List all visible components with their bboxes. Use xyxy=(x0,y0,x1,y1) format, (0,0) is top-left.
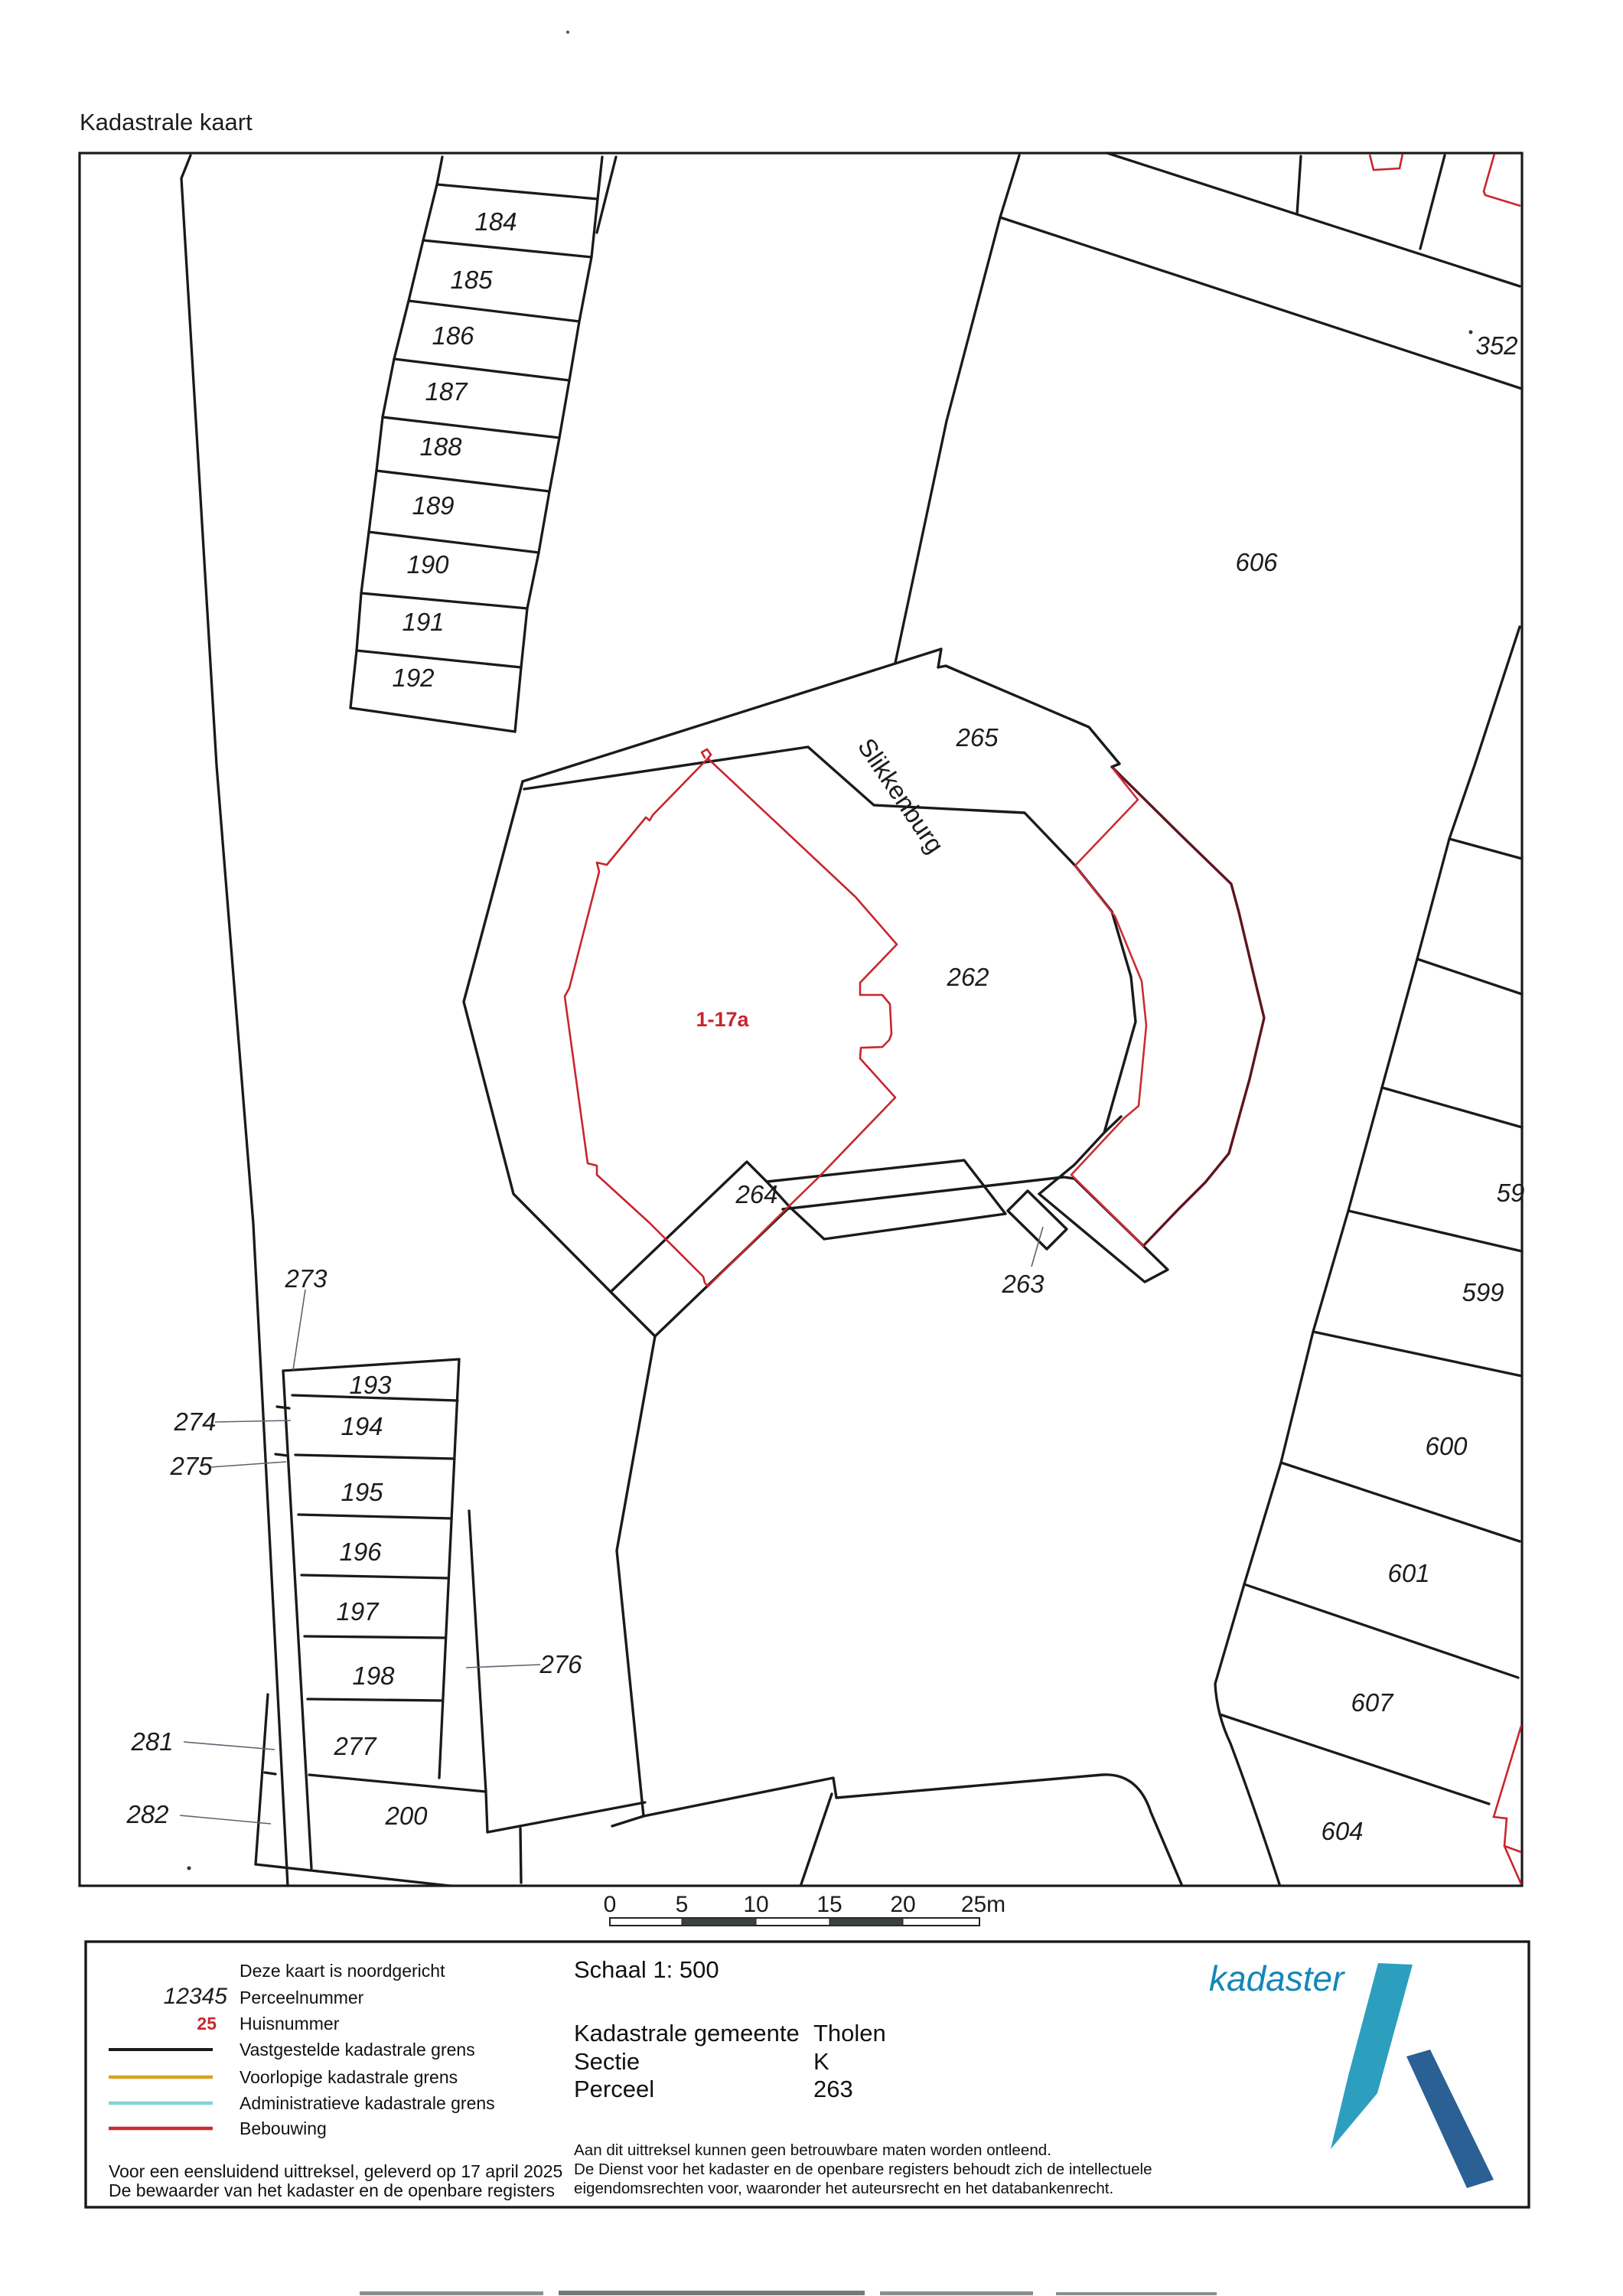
svg-text:Vastgestelde kadastrale grens: Vastgestelde kadastrale grens xyxy=(240,2040,475,2060)
svg-text:Schaal 1: 500: Schaal 1: 500 xyxy=(574,1956,719,1983)
svg-text:5: 5 xyxy=(676,1892,689,1917)
svg-text:194: 194 xyxy=(341,1412,383,1440)
svg-text:186: 186 xyxy=(432,321,474,350)
svg-text:352: 352 xyxy=(1475,331,1517,360)
svg-text:281: 281 xyxy=(130,1727,173,1756)
svg-text:275: 275 xyxy=(169,1452,213,1480)
svg-text:195: 195 xyxy=(341,1478,383,1506)
svg-text:599: 599 xyxy=(1462,1278,1504,1306)
svg-text:192: 192 xyxy=(392,664,434,692)
svg-text:276: 276 xyxy=(539,1650,582,1678)
svg-text:282: 282 xyxy=(125,1800,168,1828)
svg-text:198: 198 xyxy=(352,1662,395,1690)
svg-text:196: 196 xyxy=(339,1538,382,1566)
svg-text:606: 606 xyxy=(1235,548,1278,576)
svg-text:188: 188 xyxy=(419,432,462,461)
svg-text:277: 277 xyxy=(333,1732,377,1760)
svg-text:Voorlopige kadastrale grens: Voorlopige kadastrale grens xyxy=(240,2067,458,2087)
svg-text:12345: 12345 xyxy=(164,1984,228,2009)
svg-text:600: 600 xyxy=(1425,1432,1468,1460)
svg-text:De Dienst voor het kadaster en: De Dienst voor het kadaster en de openba… xyxy=(574,2161,1152,2178)
svg-text:189: 189 xyxy=(412,491,454,520)
svg-text:10: 10 xyxy=(743,1892,768,1917)
svg-text:0: 0 xyxy=(604,1892,617,1917)
svg-text:190: 190 xyxy=(406,550,449,579)
svg-text:265: 265 xyxy=(955,723,999,752)
svg-text:kadaster: kadaster xyxy=(1209,1958,1345,1998)
svg-text:De bewaarder van het kadaster: De bewaarder van het kadaster en de open… xyxy=(109,2180,555,2200)
svg-text:25m: 25m xyxy=(961,1892,1005,1917)
svg-text:Sectie: Sectie xyxy=(574,2048,640,2075)
svg-text:Deze kaart is noordgericht: Deze kaart is noordgericht xyxy=(240,1961,445,1981)
svg-text:263: 263 xyxy=(813,2076,853,2102)
svg-text:1-17a: 1-17a xyxy=(696,1008,749,1031)
svg-text:Administratieve kadastrale gre: Administratieve kadastrale grens xyxy=(240,2093,495,2113)
svg-text:274: 274 xyxy=(173,1407,216,1436)
svg-text:20: 20 xyxy=(890,1892,915,1917)
svg-text:273: 273 xyxy=(284,1264,328,1293)
svg-text:264: 264 xyxy=(735,1180,777,1208)
svg-text:Bebouwing: Bebouwing xyxy=(240,2118,327,2138)
svg-text:263: 263 xyxy=(1001,1270,1045,1298)
svg-text:187: 187 xyxy=(425,377,468,406)
svg-text:eigendomsrechten voor, waarond: eigendomsrechten voor, waaronder het aut… xyxy=(574,2180,1113,2197)
svg-text:Kadastrale kaart: Kadastrale kaart xyxy=(80,109,253,135)
svg-text:Perceel: Perceel xyxy=(574,2076,654,2102)
svg-text:Tholen: Tholen xyxy=(813,2020,886,2047)
svg-text:193: 193 xyxy=(349,1371,392,1399)
svg-text:191: 191 xyxy=(402,608,444,636)
svg-text:Huisnummer: Huisnummer xyxy=(240,2014,340,2033)
svg-text:Perceelnummer: Perceelnummer xyxy=(240,1988,364,2007)
svg-text:197: 197 xyxy=(336,1597,380,1626)
svg-text:184: 184 xyxy=(474,207,517,236)
svg-text:601: 601 xyxy=(1387,1559,1429,1587)
svg-text:K: K xyxy=(813,2048,829,2075)
svg-text:607: 607 xyxy=(1351,1688,1394,1717)
svg-text:25: 25 xyxy=(197,2014,217,2033)
svg-text:Aan dit uittreksel kunnen geen: Aan dit uittreksel kunnen geen betrouwba… xyxy=(574,2141,1051,2159)
svg-text:604: 604 xyxy=(1321,1817,1363,1845)
svg-text:200: 200 xyxy=(384,1802,428,1830)
svg-text:Voor een eensluidend uittrekse: Voor een eensluidend uittreksel, gelever… xyxy=(109,2161,562,2181)
svg-text:262: 262 xyxy=(946,963,989,991)
svg-text:59: 59 xyxy=(1497,1179,1525,1207)
svg-text:15: 15 xyxy=(816,1892,842,1917)
svg-text:185: 185 xyxy=(450,266,493,294)
svg-text:Kadastrale gemeente: Kadastrale gemeente xyxy=(574,2020,800,2047)
